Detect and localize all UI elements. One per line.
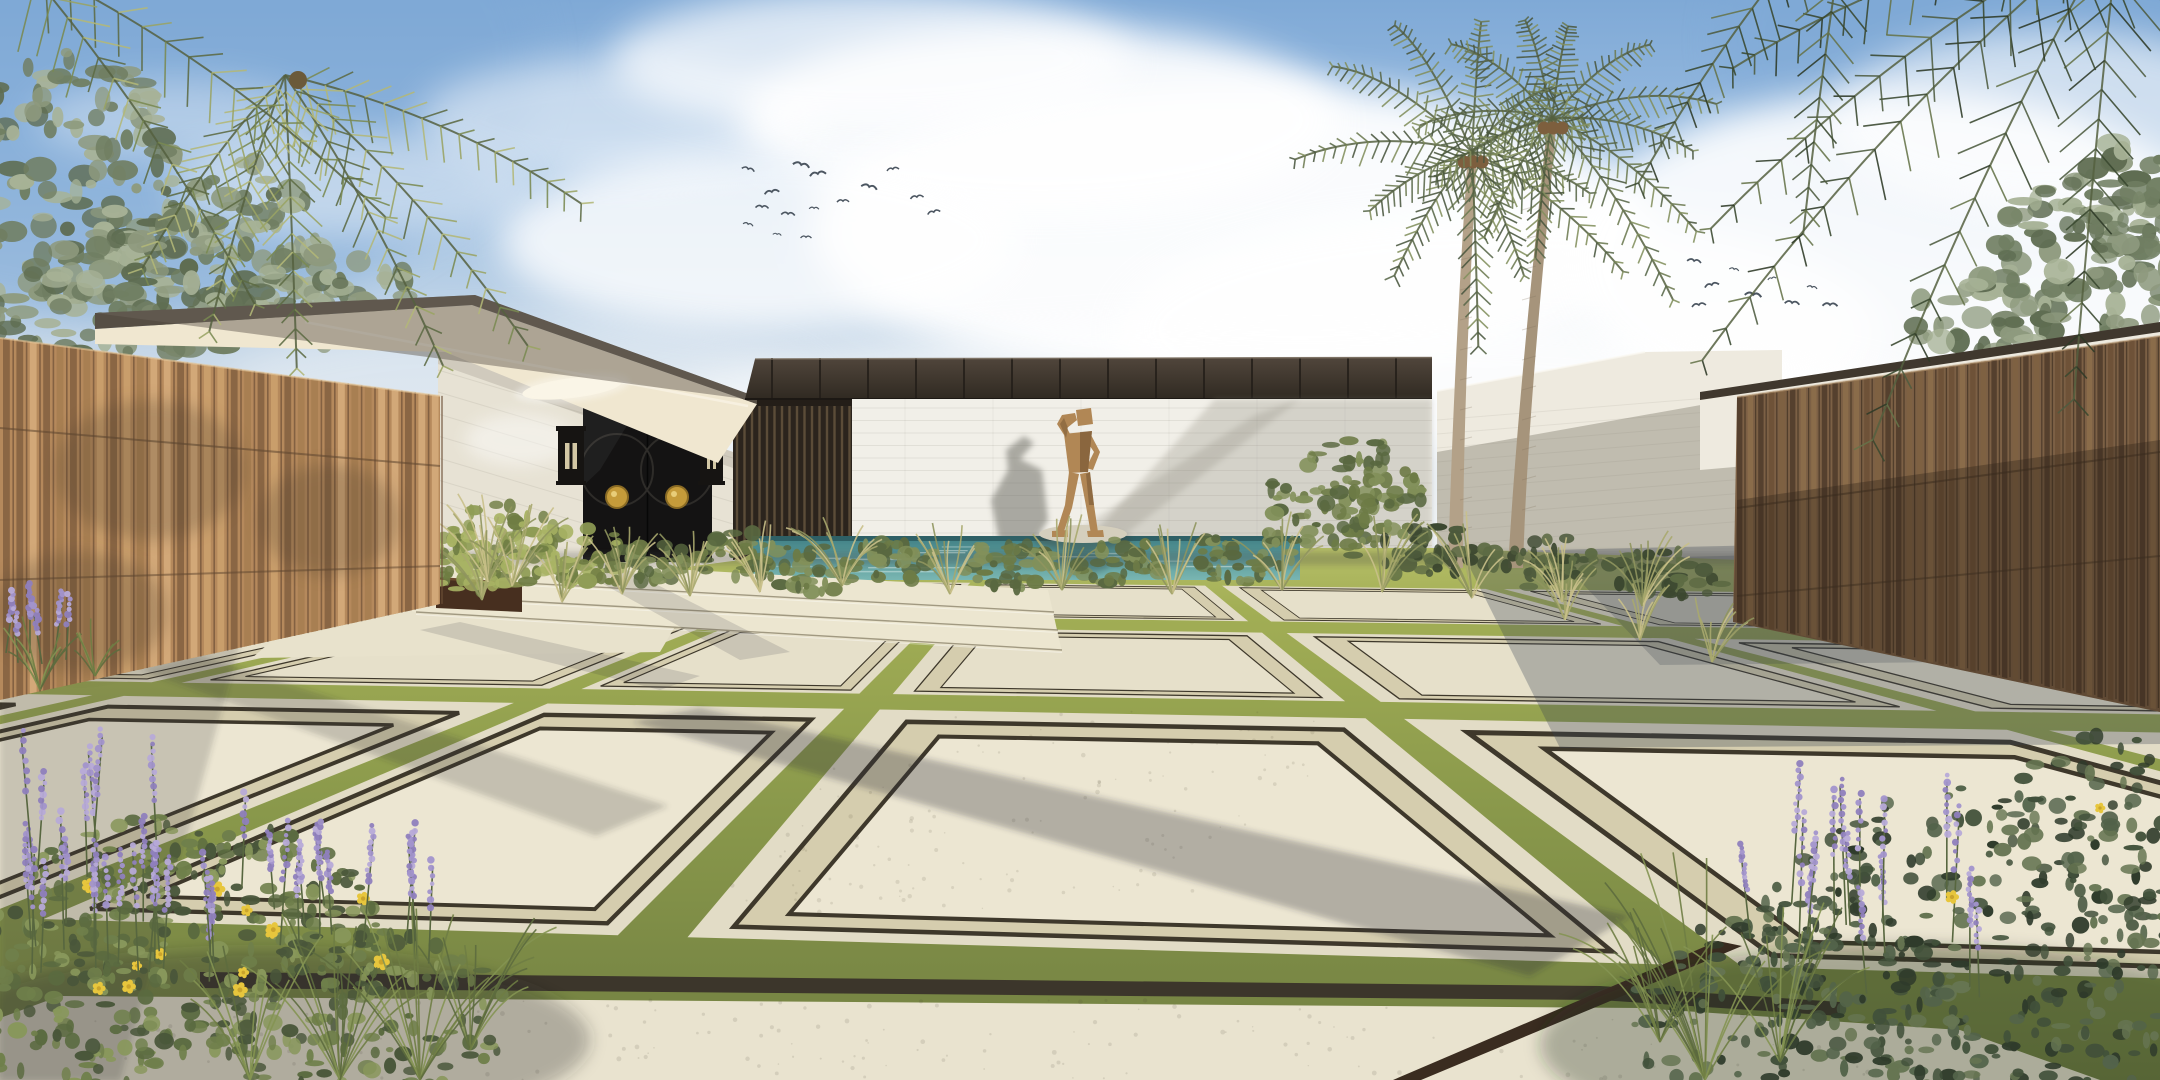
lavender-bloom — [1945, 816, 1952, 823]
travertine-pit — [1286, 765, 1289, 768]
shrub-foliage — [1680, 561, 1699, 570]
lavender-bloom — [208, 902, 214, 908]
shrub-foliage — [1864, 1037, 1881, 1050]
lavender-bloom — [11, 606, 16, 611]
lavender-bloom — [24, 778, 31, 785]
lavender-bloom — [427, 856, 435, 864]
lavender-bloom — [1844, 835, 1851, 842]
shrub-foliage — [1386, 486, 1403, 499]
travertine-pit — [616, 1056, 621, 1061]
lavender-bloom — [406, 863, 412, 869]
shrub-foliage — [2096, 958, 2108, 969]
shrub-foliage — [1771, 951, 1778, 967]
lavender-bloom — [1797, 773, 1804, 780]
shrub-foliage — [1717, 1055, 1726, 1065]
shrub-foliage — [2024, 827, 2044, 842]
travertine-pit — [816, 1025, 820, 1029]
lavender-bloom — [318, 819, 325, 826]
shrub-foliage — [990, 560, 998, 567]
shrub-foliage — [2003, 1030, 2011, 1043]
lavender-bloom — [1944, 802, 1949, 807]
shrub-foliage — [1342, 475, 1352, 484]
shrub-foliage — [1989, 874, 2001, 886]
shrub-foliage — [1432, 563, 1442, 572]
lavender-bloom — [1841, 804, 1847, 810]
tree-shadow-on-fence — [0, 552, 168, 672]
lavender-bloom — [163, 869, 170, 876]
travertine-pit — [1016, 870, 1019, 873]
travertine-pit — [1351, 1036, 1355, 1040]
lavender-bloom — [1860, 935, 1866, 941]
flower-core — [97, 986, 101, 990]
travertine-pit — [1148, 771, 1151, 774]
shrub-foliage — [31, 1031, 38, 1037]
travertine-pit — [910, 828, 914, 832]
shrub-foliage — [2016, 896, 2034, 902]
travertine-pit — [1177, 1014, 1181, 1018]
travertine-pit — [1010, 878, 1014, 882]
travertine-pit — [1167, 741, 1170, 744]
travertine-pit — [1385, 1007, 1387, 1009]
shrub-foliage — [140, 967, 148, 973]
lavender-bloom — [153, 861, 158, 866]
travertine-pit — [989, 1033, 991, 1035]
shrub-foliage — [2117, 928, 2124, 942]
frond-barb — [1560, 60, 1578, 61]
shrub-foliage — [1914, 945, 1933, 960]
travertine-pit — [647, 1052, 649, 1054]
travertine-pit — [1059, 713, 1063, 717]
lavender-bloom — [1858, 818, 1864, 824]
shrub-foliage — [1972, 876, 1986, 887]
shrub-foliage — [217, 849, 234, 858]
shrub-foliage — [1225, 541, 1239, 555]
shrub-foliage — [1951, 1036, 1960, 1050]
lavender-bloom — [367, 845, 373, 851]
travertine-pit — [1152, 872, 1156, 876]
sconce-cap — [556, 481, 586, 485]
flower-core — [1950, 895, 1954, 899]
shrub-foliage — [158, 926, 171, 937]
lavender-bloom — [150, 748, 155, 753]
shrub-foliage — [1923, 961, 1942, 967]
shrub-foliage — [976, 569, 993, 575]
olive-foliage — [2062, 177, 2082, 191]
lavender-bloom — [1838, 818, 1844, 824]
frond-barb — [1390, 78, 1391, 87]
travertine-pit — [895, 880, 899, 884]
lavender-bloom — [1969, 866, 1975, 872]
shrub-foliage — [1867, 1023, 1876, 1030]
shrub-foliage — [1897, 1022, 1905, 1038]
shrub-foliage — [354, 884, 365, 890]
shrub-foliage — [39, 944, 46, 958]
travertine-pit — [850, 1066, 854, 1070]
lavender-bloom — [427, 889, 432, 894]
shrub-foliage — [2017, 818, 2030, 830]
shrub-foliage — [882, 550, 892, 556]
lavender-bloom — [1845, 842, 1850, 847]
shrub-foliage — [767, 571, 774, 581]
shrub-foliage — [1198, 548, 1208, 555]
lavender-bloom — [1840, 777, 1845, 782]
lavender-bloom — [1974, 914, 1979, 919]
lavender-bloom — [200, 862, 206, 868]
shrub-foliage — [1829, 933, 1842, 940]
travertine-pit — [982, 751, 984, 753]
shrub-foliage — [1905, 1004, 1911, 1020]
lavender-bloom — [1841, 825, 1846, 830]
lavender-bloom — [430, 873, 435, 878]
travertine-pit — [908, 864, 910, 866]
lavender-bloom — [64, 610, 72, 618]
lavender-bloom — [59, 826, 66, 833]
travertine-pit — [946, 1055, 948, 1057]
lavender-bloom — [150, 783, 157, 790]
travertine-pit — [760, 1003, 763, 1006]
shrub-foliage — [1220, 556, 1227, 565]
lavender-bloom — [153, 840, 159, 846]
fence-slat — [432, 395, 439, 606]
travertine-pit — [1162, 775, 1164, 777]
shrub-foliage — [1097, 540, 1106, 553]
shrub-foliage — [2066, 933, 2075, 948]
lavender-bloom — [1801, 845, 1806, 850]
shrub-foliage — [1848, 1014, 1866, 1022]
travertine-pit — [622, 1047, 626, 1051]
travertine-pit — [1062, 1063, 1064, 1065]
shrub-foliage — [1872, 1057, 1891, 1066]
travertine-pit — [784, 850, 786, 852]
flower-core — [126, 984, 131, 989]
shrub-foliage — [2074, 822, 2087, 830]
shrub-foliage — [327, 1014, 334, 1025]
shrub-foliage — [66, 1020, 74, 1032]
olive-foliage — [154, 286, 186, 294]
lavender-bloom — [30, 846, 37, 853]
lavender-bloom — [1793, 802, 1797, 806]
flower-core — [158, 952, 162, 956]
lavender-bloom — [162, 907, 168, 913]
lavender-bloom — [316, 850, 321, 855]
shrub-foliage — [2099, 829, 2119, 842]
travertine-pit — [1212, 771, 1214, 773]
travertine-pit — [944, 832, 946, 834]
frond-barb — [1567, 29, 1576, 30]
travertine-pit — [899, 890, 902, 893]
lavender-bloom — [1955, 830, 1962, 837]
lavender-bloom — [1831, 802, 1838, 809]
shrub-foliage — [268, 1035, 276, 1050]
olive-foliage — [2118, 256, 2135, 271]
shrub-foliage — [2108, 800, 2118, 810]
travertine-pit — [1273, 782, 1277, 786]
lavender-bloom — [141, 854, 146, 859]
travertine-pit — [862, 1057, 865, 1060]
travertine-pit — [928, 809, 931, 812]
travertine-pit — [1169, 751, 1171, 753]
travertine-pit — [1499, 1049, 1503, 1053]
statue-part — [1076, 408, 1093, 426]
shrub-foliage — [1859, 995, 1866, 1004]
shrub-foliage — [1375, 452, 1383, 468]
lavender-bloom — [1810, 841, 1817, 848]
shrub-foliage — [2084, 955, 2091, 961]
frond-barb — [1395, 20, 1396, 25]
lavender-bloom — [1974, 939, 1979, 944]
lavender-bloom — [154, 874, 159, 879]
shrub-foliage — [1642, 1058, 1654, 1069]
travertine-pit — [801, 847, 805, 851]
shrub-foliage — [111, 819, 128, 833]
lavender-bloom — [1831, 795, 1836, 800]
shrub-foliage — [2076, 732, 2094, 745]
lavender-bloom — [58, 855, 63, 860]
shrub-foliage — [1104, 575, 1115, 586]
shrub-foliage — [241, 895, 261, 905]
shrub-foliage — [1886, 918, 1897, 927]
shrub-foliage — [468, 504, 474, 520]
olive-foliage — [1962, 306, 1993, 329]
shrub-foliage — [128, 946, 146, 956]
shrub-foliage — [2014, 790, 2023, 802]
shrub-foliage — [1211, 534, 1220, 543]
lavender-bloom — [104, 874, 110, 880]
shrub-foliage — [2068, 863, 2087, 874]
travertine-pit — [929, 830, 932, 833]
travertine-pit — [614, 1006, 618, 1010]
shrub-foliage — [253, 914, 266, 924]
shrub-foliage — [109, 972, 115, 983]
shrub-foliage — [260, 883, 277, 894]
travertine-pit — [908, 894, 912, 898]
travertine-pit — [1125, 1072, 1127, 1074]
shrub-foliage — [2124, 896, 2142, 911]
lavender-bloom — [1878, 894, 1884, 900]
lavender-bloom — [1795, 814, 1801, 820]
shrub-foliage — [48, 970, 65, 985]
olive-foliage — [48, 240, 79, 260]
travertine-pit — [1358, 1065, 1360, 1067]
travertine-pit — [877, 846, 879, 848]
olive-foliage — [24, 101, 42, 122]
lavender-bloom — [1859, 924, 1865, 930]
courtyard-render-canvas — [0, 0, 2160, 1080]
standing-seam-roof-band — [745, 357, 1432, 399]
brass-door-pull — [606, 486, 628, 508]
lavender-bloom — [94, 785, 100, 791]
shrub-foliage — [407, 970, 419, 987]
lavender-bloom — [118, 889, 125, 896]
shrub-foliage — [1018, 574, 1035, 581]
shrub-foliage — [2128, 1050, 2140, 1056]
olive-foliage — [107, 160, 138, 180]
lavender-bloom — [151, 769, 157, 775]
shrub-foliage — [1304, 509, 1311, 519]
olive-foliage — [2004, 316, 2025, 328]
lavender-bloom — [141, 843, 147, 849]
lavender-bloom — [1812, 835, 1819, 842]
shrub-foliage — [325, 910, 342, 917]
travertine-pit — [828, 878, 831, 881]
travertine-pit — [962, 862, 964, 864]
fence-slat — [231, 368, 238, 649]
frond-barb — [1481, 25, 1488, 26]
travertine-pit — [1307, 1042, 1310, 1045]
lavender-bloom — [427, 896, 434, 903]
travertine-pit — [1134, 1033, 1138, 1037]
shrub-foliage — [1916, 996, 1922, 1012]
shrub-foliage — [1897, 936, 1904, 950]
shrub-foliage — [1963, 1070, 1981, 1078]
lavender-bloom — [40, 878, 46, 884]
travertine-pit — [1252, 1026, 1253, 1027]
travertine-pit — [1271, 736, 1274, 739]
travertine-pit — [649, 999, 653, 1003]
travertine-pit — [1139, 869, 1142, 872]
shrub-foliage — [74, 959, 85, 968]
shrub-foliage — [2022, 856, 2042, 870]
shrub-foliage — [1210, 572, 1217, 577]
lavender-bloom — [1830, 786, 1838, 794]
shrub-foliage — [1932, 1034, 1942, 1046]
shrub-foliage — [1962, 1042, 1970, 1054]
lavender-bloom — [1839, 810, 1846, 817]
travertine-pit — [837, 796, 839, 798]
travertine-pit — [867, 1004, 872, 1009]
travertine-pit — [1007, 888, 1011, 892]
lavender-bloom — [285, 824, 292, 831]
travertine-pit — [1095, 790, 1100, 795]
shrub-foliage — [1763, 911, 1774, 923]
lavender-bloom — [80, 780, 87, 787]
travertine-pit — [779, 855, 782, 858]
shrub-foliage — [2120, 864, 2140, 874]
shrub-foliage — [2037, 1017, 2051, 1027]
lavender-bloom — [118, 858, 123, 863]
lavender-bloom — [1742, 866, 1747, 871]
lavender-bloom — [1812, 866, 1818, 872]
travertine-pit — [1307, 775, 1309, 777]
shrub-foliage — [1193, 556, 1209, 570]
travertine-pit — [1040, 729, 1041, 730]
shrub-foliage — [972, 575, 983, 584]
lavender-bloom — [140, 849, 145, 854]
lavender-bloom — [243, 796, 249, 802]
shrub-foliage — [2084, 911, 2098, 918]
shrub-foliage — [2029, 811, 2039, 825]
travertine-pit — [794, 898, 797, 901]
lavender-bloom — [148, 761, 155, 768]
lavender-bloom — [368, 850, 374, 856]
shrub-foliage — [2101, 818, 2120, 831]
lavender-bloom — [132, 851, 137, 856]
lavender-bloom — [84, 792, 89, 797]
lavender-bloom — [1858, 918, 1863, 923]
shrub-foliage — [1343, 455, 1356, 472]
shrub-foliage — [2025, 906, 2039, 914]
shrub-foliage — [518, 576, 537, 586]
shrub-foliage — [1923, 997, 1942, 1007]
travertine-pit — [1191, 889, 1195, 893]
travertine-pit — [1252, 738, 1256, 742]
lavender-bloom — [43, 865, 48, 870]
shrub-foliage — [1772, 882, 1782, 893]
lavender-bloom — [149, 776, 156, 783]
lavender-bloom — [1858, 929, 1863, 934]
lavender-bloom — [80, 768, 87, 775]
shrub-foliage — [1962, 1015, 1968, 1023]
lavender-bloom — [156, 847, 161, 852]
shrub-foliage — [65, 1000, 85, 1008]
shrub-foliage — [1868, 1069, 1883, 1078]
travertine-pit — [1299, 1008, 1301, 1010]
lavender-bloom — [367, 862, 372, 867]
shrub-foliage — [422, 973, 432, 981]
shrub-foliage — [106, 1057, 116, 1062]
travertine-pit — [654, 1009, 656, 1011]
shrub-foliage — [2102, 1055, 2118, 1069]
shrub-foliage — [366, 962, 374, 971]
lavender-bloom — [293, 886, 300, 893]
shrub-foliage — [1133, 560, 1140, 573]
lavender-bloom — [1969, 923, 1974, 928]
lavender-bloom — [95, 759, 100, 764]
travertine-pit — [707, 1031, 710, 1034]
olive-foliage — [52, 107, 63, 128]
travertine-pit — [733, 1018, 738, 1023]
shrub-foliage — [2117, 949, 2125, 958]
lavender-bloom — [408, 877, 415, 884]
shrub-foliage — [2031, 878, 2048, 888]
lavender-bloom — [141, 813, 148, 820]
lavender-bloom — [1881, 795, 1888, 802]
shrub-foliage — [1778, 901, 1791, 907]
shrub-foliage — [1309, 451, 1327, 456]
lavender-bloom — [279, 876, 285, 882]
lavender-bloom — [83, 762, 89, 768]
shrub-foliage — [1906, 854, 1916, 867]
lavender-bloom — [1829, 811, 1835, 817]
shrub-foliage — [1090, 558, 1106, 567]
shrub-foliage — [135, 1038, 148, 1051]
lavender-bloom — [1858, 790, 1865, 797]
shrub-foliage — [54, 1016, 64, 1023]
lavender-bloom — [325, 849, 330, 854]
lavender-bloom — [1954, 821, 1960, 827]
shrub-foliage — [1812, 903, 1827, 910]
lavender-bloom — [61, 836, 66, 841]
lavender-bloom — [22, 854, 27, 859]
lavender-bloom — [1943, 823, 1950, 830]
lavender-bloom — [38, 785, 45, 792]
shrub-foliage — [707, 531, 726, 546]
frond-barb — [1680, 213, 1688, 214]
shrub-foliage — [1956, 785, 1967, 791]
lavender-bloom — [118, 847, 123, 852]
shrub-foliage — [429, 937, 444, 954]
shrub-foliage — [1840, 1060, 1848, 1077]
olive-foliage — [190, 247, 203, 256]
shrub-foliage — [2148, 964, 2159, 980]
shrub-foliage — [791, 576, 800, 582]
shrub-foliage — [2001, 825, 2019, 836]
frond-barb — [1566, 33, 1577, 34]
travertine-pit — [1292, 762, 1295, 765]
lavender-bloom — [64, 870, 70, 876]
shrub-foliage — [191, 870, 198, 880]
travertine-pit — [1220, 1030, 1225, 1035]
